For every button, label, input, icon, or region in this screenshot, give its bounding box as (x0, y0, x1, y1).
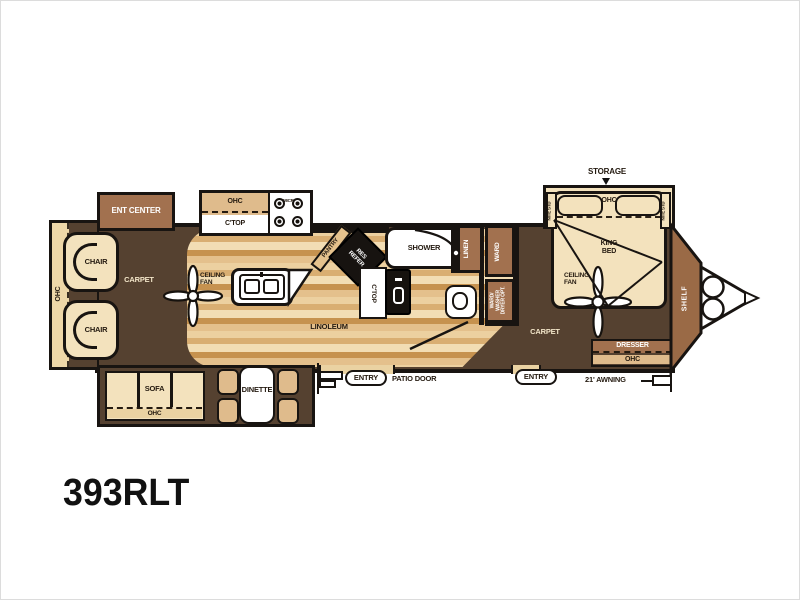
island-sink (239, 274, 285, 300)
kitchen-countertop: C'TOP (202, 215, 268, 233)
chair-bottom: CHAIR (63, 300, 119, 360)
dinette-chair (217, 398, 239, 424)
dresser-top: DRESSER (593, 341, 672, 353)
sofa: SOFA OHC (105, 371, 205, 421)
storage-label: STORAGE (567, 167, 647, 177)
ward-cabinet: WARD (485, 225, 515, 277)
kitchen-ohc-label: OHC (228, 198, 243, 206)
bath-countertop: C'TOP (359, 267, 387, 319)
nite-stand-label: NITE STD (662, 195, 670, 228)
storage-arrow-icon (602, 178, 610, 185)
sink-basin (263, 279, 279, 294)
toilet-bowl (452, 292, 468, 310)
nite-stand-label: NITE STD (548, 195, 556, 228)
bath-ctop-label: C'TOP (368, 271, 377, 316)
bedroom-carpet-label: CARPET (517, 327, 573, 337)
ward-washer-dryer-opt: WARD/ WASHER DRYER OPT. (485, 279, 515, 323)
dresser-cabinet: DRESSER OHC (591, 339, 675, 367)
propane-tank (703, 299, 724, 320)
ward-label: WARD (494, 230, 504, 274)
sofa-ohc-label: OHC (148, 410, 162, 417)
res-refer-label: RES REFER (346, 245, 369, 268)
faucet-icon (260, 272, 263, 277)
faucet-icon (395, 278, 402, 281)
chair-arm-arc (73, 243, 97, 281)
hitch-frame (701, 300, 751, 329)
sofa-label: SOFA (107, 384, 202, 394)
patio-door-label: PATIO DOOR (392, 375, 436, 383)
toilet (445, 285, 477, 319)
dresser-ohc-label: OHC (625, 356, 640, 364)
bed-dashed-line (557, 216, 661, 218)
linoleum-label: LINOLEUM (299, 322, 359, 332)
kitchen-ctop-label: C'TOP (225, 220, 245, 228)
entry-badge-patio: ENTRY (345, 370, 387, 386)
linen-cabinet: LINEN (457, 225, 483, 273)
shelf-label: SHELF (680, 281, 691, 317)
floorplan-page: OHC CHAIR CHAIR ENT CENTER OHC C'TOP MIC… (0, 0, 800, 600)
ward-washer-label: WARD/ WASHER DRYER OPT. (491, 282, 508, 320)
sofa-ohc: OHC (107, 409, 202, 418)
burner-icon (274, 198, 285, 209)
nite-stand-right: NITE STD (660, 192, 671, 229)
ent-center-label: ENT CENTER (111, 207, 160, 216)
bath-sink (385, 269, 411, 315)
king-bed-label: KING BED (583, 238, 635, 257)
bed-ohc-label: OHC (597, 196, 621, 205)
bedroom-ceiling-fan-label: CEILING FAN (564, 272, 589, 286)
bath-sink-basin (393, 287, 404, 304)
living-ceiling-fan-label: CEILING FAN (200, 272, 225, 286)
burner-icon (292, 216, 303, 227)
hitch-coupler (745, 292, 758, 304)
dresser-label: DRESSER (616, 342, 648, 350)
dresser-ohc: OHC (593, 355, 672, 364)
awning-arm-bracket (641, 372, 671, 392)
linen-label: LINEN (463, 228, 473, 270)
sink-basin (244, 279, 260, 294)
burner-icon (292, 198, 303, 209)
ent-center-cabinet: ENT CENTER (97, 192, 175, 231)
range-cooktop: MICRO (268, 193, 310, 233)
entry-badge-bedroom: ENTRY (515, 369, 557, 385)
living-carpet-label: CARPET (111, 275, 167, 285)
shower-label: SHOWER (408, 244, 441, 252)
model-number: 393RLT (63, 472, 189, 515)
kitchen-slide: OHC C'TOP MICRO (199, 190, 313, 236)
entry-label: ENTRY (354, 374, 378, 382)
dinette-label: DINETTE (229, 385, 285, 396)
chair-arm-arc (73, 311, 97, 349)
propane-tank (703, 277, 724, 298)
kitchen-ohc: OHC (202, 193, 268, 213)
hitch-frame (701, 267, 751, 296)
burner-icon (274, 216, 285, 227)
dinette-chair (277, 398, 299, 424)
nite-stand-left: NITE STD (546, 192, 557, 229)
bed-pillow (615, 195, 661, 216)
entry-label: ENTRY (524, 373, 548, 381)
awning-label: 21' AWNING (585, 376, 626, 384)
